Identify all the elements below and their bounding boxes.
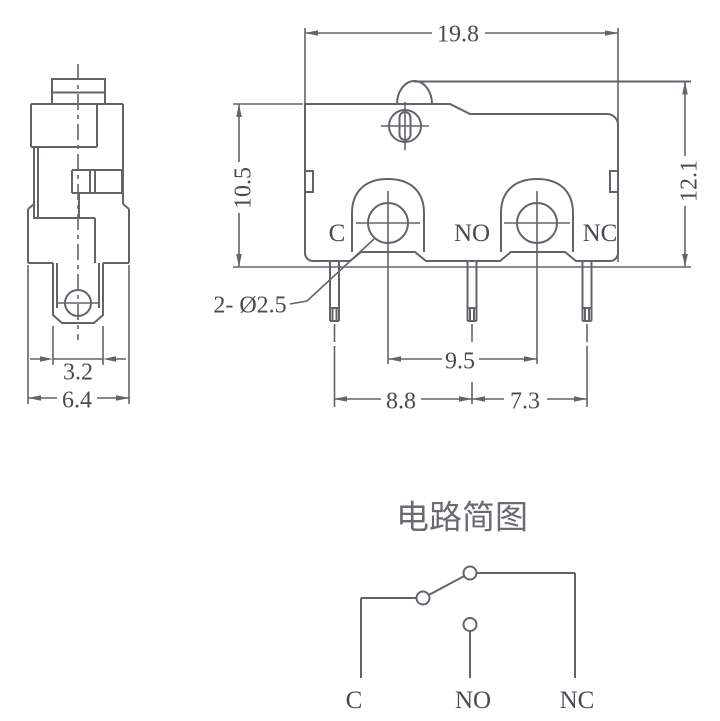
circuit-contact-nc [464, 567, 477, 580]
dim-pin-spacing-right-text: 7.3 [510, 388, 540, 414]
front-terminal-pins [330, 261, 592, 321]
extension-lines [28, 28, 691, 404]
dim-pin-spacing-left-text: 8.8 [386, 388, 416, 414]
front-label-c: C [329, 220, 346, 247]
circuit-label-nc: NC [560, 687, 595, 714]
front-screw-crosshair [381, 102, 429, 150]
dim-depth-text: 6.4 [62, 387, 92, 413]
front-latch-window-left [305, 171, 313, 192]
front-label-nc: NC [583, 220, 618, 247]
hole-callout-leader [290, 239, 374, 304]
front-hole-crosshairs [356, 191, 570, 364]
front-view: C NO NC [305, 81, 691, 407]
dim-overall-width-text: 19.8 [437, 21, 479, 47]
dimension-lines [28, 33, 685, 399]
dim-total-height-text: 12.1 [676, 160, 702, 202]
technical-drawing-page: C NO NC 19.8 10.5 12.1 9.5 8.8 7.3 2- Ø2… [0, 0, 720, 721]
side-detail-cluster [72, 170, 122, 193]
front-latch-window-right [610, 171, 618, 192]
circuit-contact-no [464, 618, 477, 631]
circuit-wires [361, 573, 575, 678]
circuit-title: 电路简图 [396, 500, 528, 537]
front-label-no: NO [454, 220, 490, 247]
circuit-label-no: NO [455, 687, 491, 714]
dim-body-height-text: 10.5 [230, 167, 256, 209]
dim-hole-spacing-text: 9.5 [445, 348, 475, 374]
side-view [28, 64, 129, 340]
circuit-diagram: 电路简图 C NO NC [346, 500, 595, 714]
circuit-label-c: C [346, 687, 363, 714]
hole-callout-text: 2- Ø2.5 [213, 292, 286, 318]
front-plunger-dome [397, 81, 432, 104]
micro-switch-drawing: C NO NC 19.8 10.5 12.1 9.5 8.8 7.3 2- Ø2… [0, 0, 720, 721]
dimension-arrowheads [28, 30, 688, 402]
dim-terminal-width-text: 3.2 [63, 359, 93, 385]
circuit-contact-common [417, 592, 430, 605]
